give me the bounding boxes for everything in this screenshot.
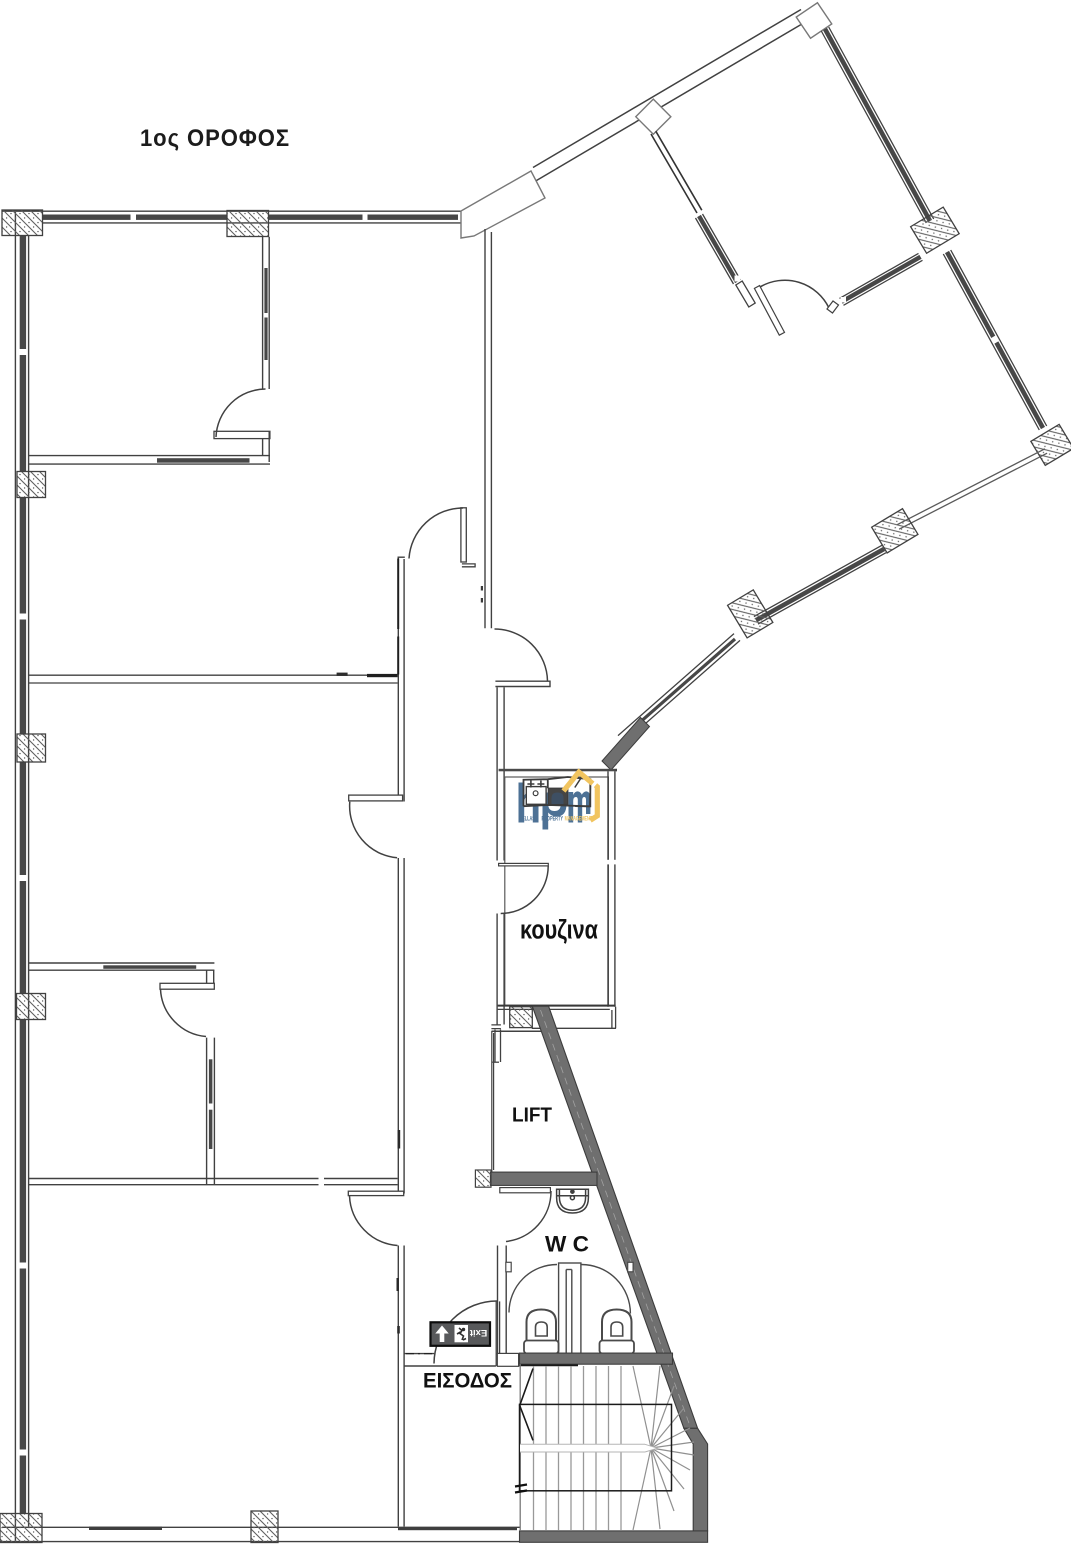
svg-text:PROPERTY: PROPERTY (542, 816, 564, 823)
svg-text:ΕΙΣΟΔΟΣ: ΕΙΣΟΔΟΣ (423, 1369, 512, 1393)
svg-text:LIFT: LIFT (512, 1104, 552, 1127)
svg-text:1ος ΟΡΟΦΟΣ: 1ος ΟΡΟΦΟΣ (140, 125, 290, 152)
svg-text:MANAGEMENT: MANAGEMENT (565, 816, 593, 823)
svg-text:W C: W C (545, 1232, 589, 1257)
svg-text:Exit: Exit (469, 1327, 487, 1338)
svg-text:HELLAS: HELLAS (519, 816, 535, 823)
svg-text:κουζινα: κουζινα (520, 915, 598, 945)
